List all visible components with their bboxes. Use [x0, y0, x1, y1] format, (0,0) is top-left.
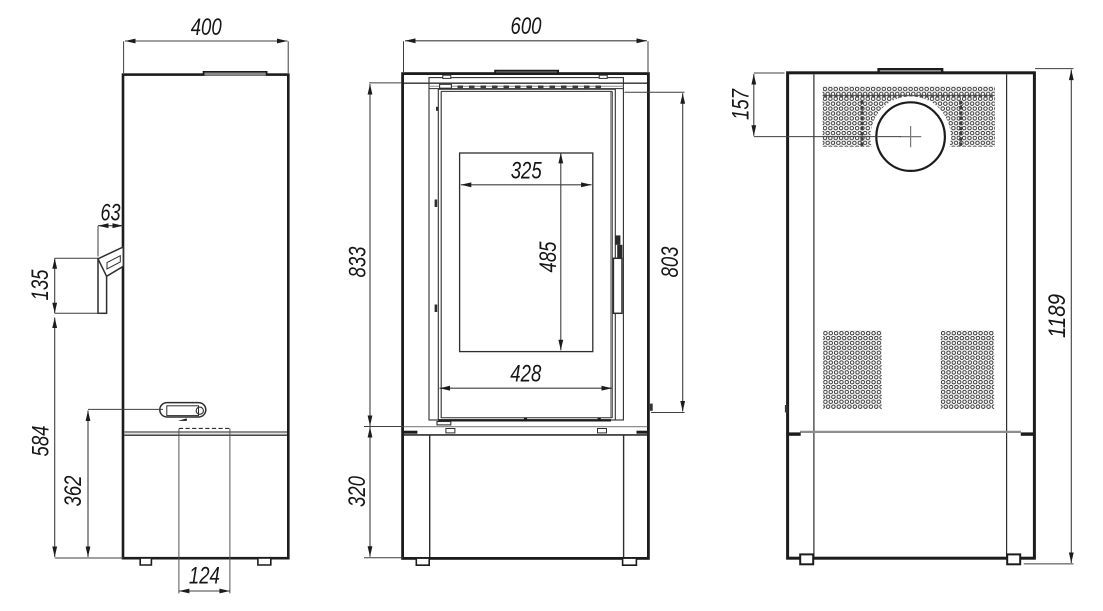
svg-text:124: 124 [189, 563, 220, 590]
svg-text:600: 600 [511, 13, 542, 40]
svg-text:157: 157 [728, 88, 755, 120]
svg-text:135: 135 [27, 269, 54, 300]
svg-text:485: 485 [535, 241, 562, 272]
svg-text:584: 584 [27, 426, 54, 457]
svg-text:1189: 1189 [1044, 294, 1071, 338]
svg-text:400: 400 [191, 14, 222, 41]
svg-text:362: 362 [60, 475, 87, 506]
svg-text:63: 63 [101, 199, 121, 226]
svg-text:320: 320 [344, 476, 371, 507]
svg-text:803: 803 [657, 246, 684, 277]
svg-text:428: 428 [510, 361, 541, 388]
svg-text:833: 833 [344, 246, 371, 277]
svg-text:325: 325 [511, 158, 542, 185]
